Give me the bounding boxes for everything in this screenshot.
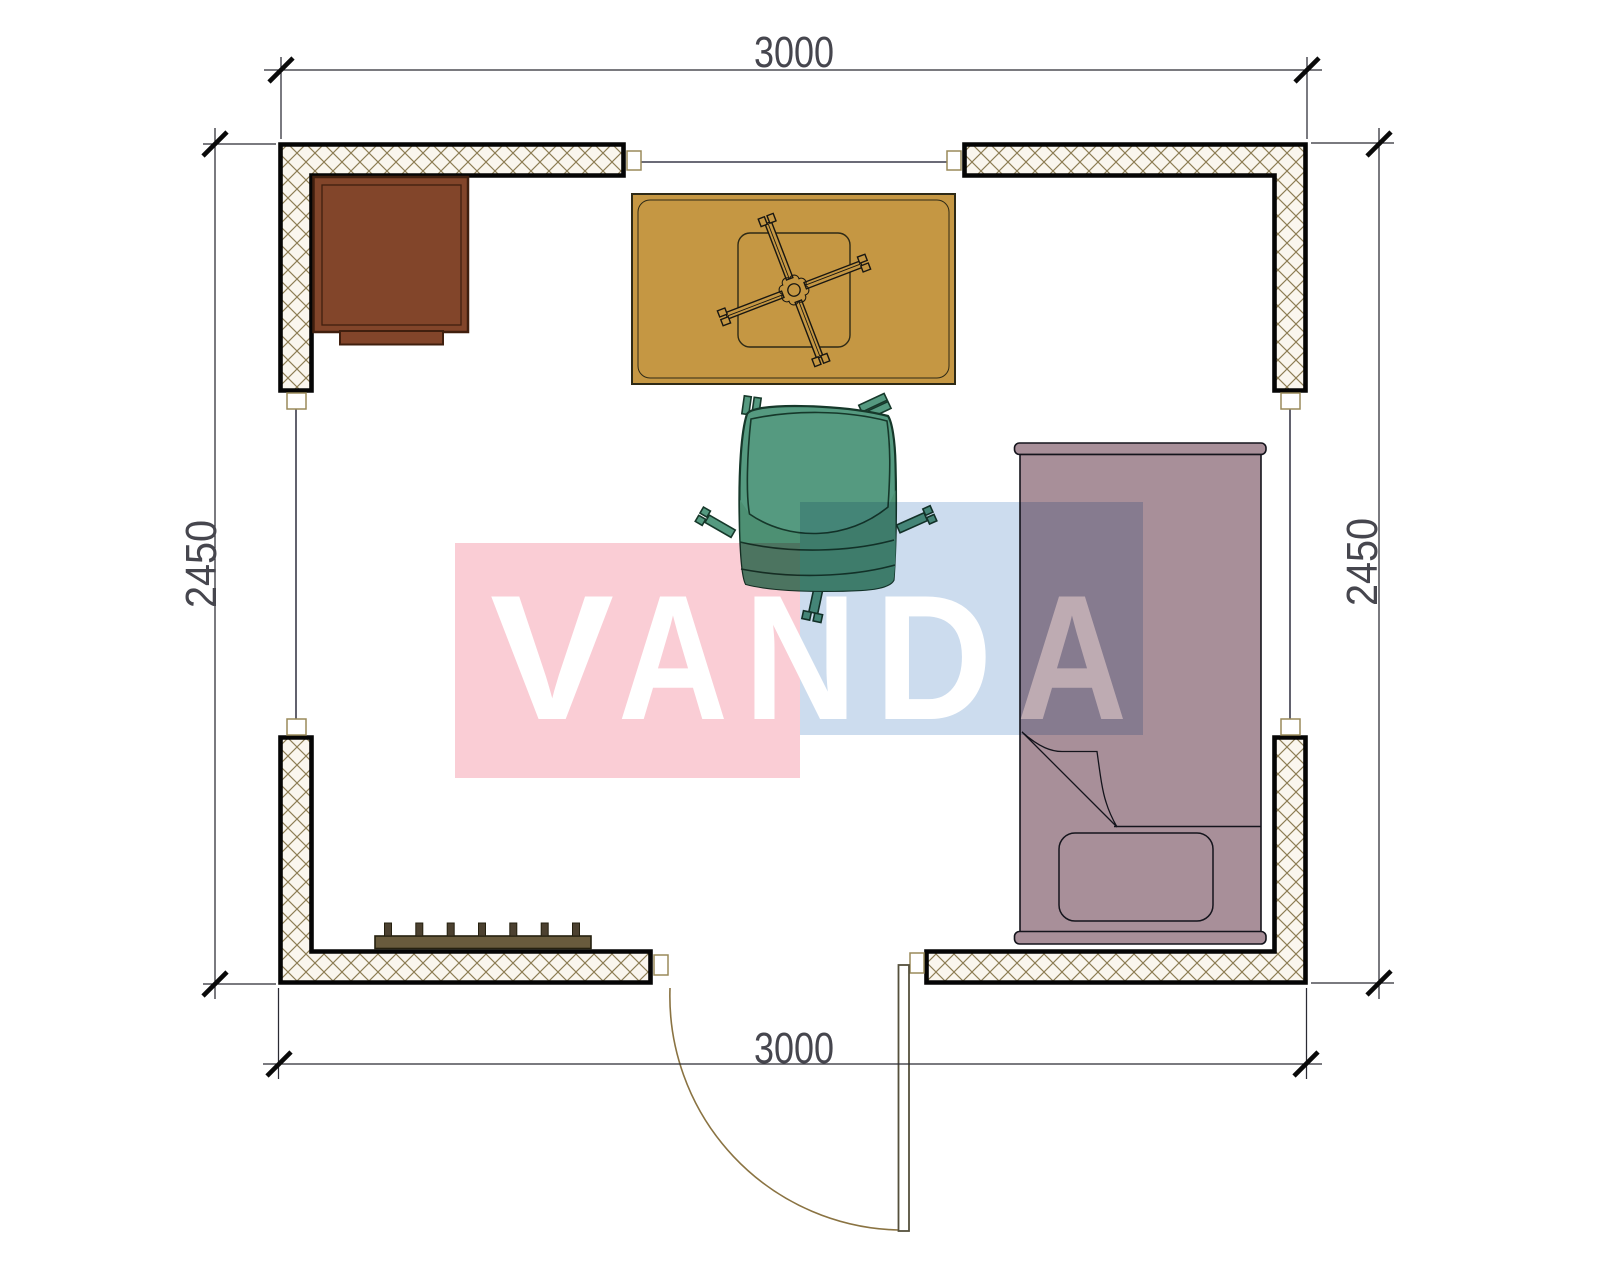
svg-text:A: A: [618, 558, 728, 757]
svg-text:N: N: [744, 558, 857, 757]
svg-text:3000: 3000: [754, 1024, 834, 1073]
svg-text:3000: 3000: [754, 28, 834, 77]
svg-text:2450: 2450: [177, 520, 226, 608]
svg-text:A: A: [1017, 558, 1127, 757]
svg-text:D: D: [875, 558, 993, 757]
svg-text:V: V: [490, 558, 614, 757]
svg-text:2450: 2450: [1338, 518, 1387, 606]
